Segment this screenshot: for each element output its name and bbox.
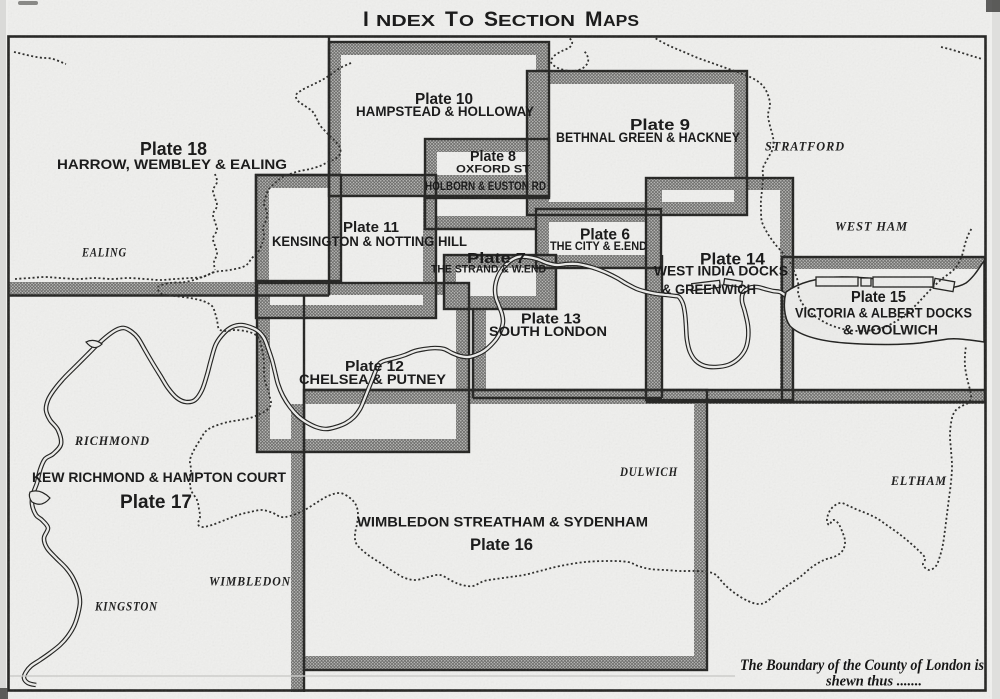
svg-text:HAMPSTEAD & HOLLOWAY: HAMPSTEAD & HOLLOWAY (356, 103, 535, 119)
svg-text:The Boundary of the County of: The Boundary of the County of London is (740, 657, 984, 674)
svg-text:M: M (585, 8, 603, 31)
svg-text:VICTORIA & ALBERT DOCKS: VICTORIA & ALBERT DOCKS (795, 305, 972, 321)
svg-text:WEST HAM: WEST HAM (835, 219, 908, 234)
svg-text:THE STRAND & W.END: THE STRAND & W.END (431, 264, 546, 276)
svg-text:OXFORD ST: OXFORD ST (456, 164, 530, 176)
svg-text:APS: APS (603, 13, 639, 30)
svg-text:S: S (484, 8, 498, 31)
svg-text:CHELSEA & PUTNEY: CHELSEA & PUTNEY (299, 371, 447, 387)
svg-text:& GREENWICH: & GREENWICH (662, 281, 756, 297)
svg-text:T: T (445, 8, 458, 31)
svg-text:WIMBLEDON STREATHAM & SYDENHAM: WIMBLEDON STREATHAM & SYDENHAM (357, 514, 648, 530)
svg-text:WIMBLEDON: WIMBLEDON (209, 574, 291, 589)
svg-text:Plate 8: Plate 8 (470, 148, 516, 165)
svg-text:RICHMOND: RICHMOND (74, 433, 150, 448)
svg-text:& WOOLWICH: & WOOLWICH (843, 322, 938, 338)
svg-text:HOLBORN & EUSTON RD: HOLBORN & EUSTON RD (425, 179, 546, 193)
svg-text:Plate 15: Plate 15 (851, 289, 906, 306)
svg-text:BETHNAL GREEN & HACKNEY: BETHNAL GREEN & HACKNEY (556, 129, 741, 145)
svg-text:O: O (459, 13, 474, 30)
svg-text:NDEX: NDEX (376, 13, 435, 30)
svg-text:SOUTH LONDON: SOUTH LONDON (489, 323, 607, 339)
svg-text:I: I (363, 8, 369, 31)
svg-text:KEW RICHMOND & HAMPTON COURT: KEW RICHMOND & HAMPTON COURT (32, 469, 286, 485)
svg-text:KINGSTON: KINGSTON (94, 599, 158, 614)
svg-text:WEST INDIA DOCKS: WEST INDIA DOCKS (654, 263, 788, 279)
svg-text:THE CITY & E.END: THE CITY & E.END (550, 239, 647, 253)
svg-text:ECTION: ECTION (498, 13, 575, 30)
svg-text:ELTHAM: ELTHAM (890, 473, 947, 488)
svg-text:DULWICH: DULWICH (619, 464, 678, 479)
svg-text:STRATFORD: STRATFORD (765, 139, 845, 154)
svg-text:EALING: EALING (81, 245, 127, 260)
svg-text:Plate 16: Plate 16 (470, 535, 533, 554)
svg-text:Plate 17: Plate 17 (120, 492, 192, 513)
svg-text:HARROW, WEMBLEY & EALING: HARROW, WEMBLEY & EALING (57, 156, 287, 172)
svg-text:KENSINGTON & NOTTING HILL: KENSINGTON & NOTTING HILL (272, 233, 467, 249)
svg-text:shewn thus .......: shewn thus ....... (825, 674, 922, 690)
